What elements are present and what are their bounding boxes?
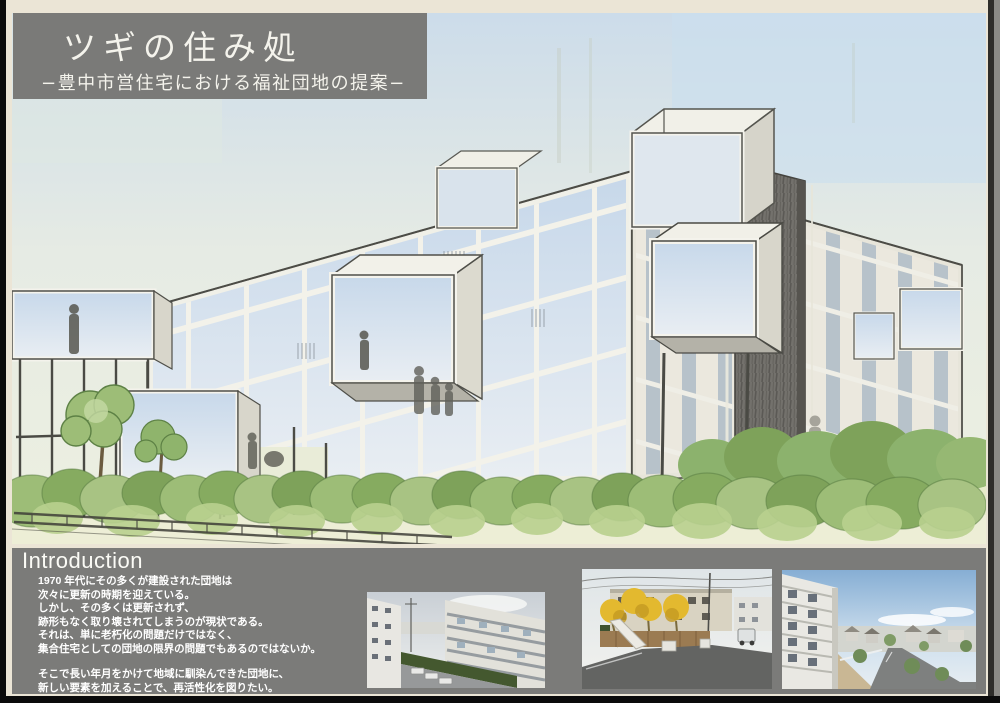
frame-edge-right-outer	[994, 0, 1000, 703]
presentation-board: ツギの住み処 −豊中市営住宅における福祉団地の提案− Introduction …	[0, 0, 1000, 703]
frame-edge-bottom	[0, 696, 1000, 703]
frame-edge-left	[0, 0, 6, 703]
intro-line: 新しい要素を加えることで、再活性化を図りたい。	[38, 682, 321, 696]
intro-heading: Introduction	[22, 548, 143, 574]
intro-line: 1970 年代にその多くが建設された団地は	[38, 575, 321, 589]
intro-line: 集合住宅としての団地の限界の問題でもあるのではないか。	[38, 643, 321, 657]
photo-danchi-neighborhood-view	[782, 570, 976, 689]
photo-danchi-courtyard	[367, 592, 545, 688]
intro-line: それは、単に老朽化の問題だけではなく、	[38, 629, 321, 643]
intro-paragraphs: 1970 年代にその多くが建設された団地は 次々に更新の時期を迎えている。 しか…	[38, 575, 321, 695]
title-block: ツギの住み処 −豊中市営住宅における福祉団地の提案−	[13, 13, 427, 99]
intro-line: 次々に更新の時期を迎えている。	[38, 589, 321, 603]
photo-danchi-street-ginkgo	[582, 569, 772, 689]
intro-line: そこで長い年月をかけて地域に馴染んできた団地に、	[38, 668, 321, 682]
paragraph-gap	[38, 656, 321, 668]
intro-line: 跡形もなく取り壊されてしまうのが現状である。	[38, 616, 321, 630]
poster-title: ツギの住み処	[63, 21, 303, 69]
intro-line: しかし、その多くは更新されず、	[38, 602, 321, 616]
poster-subtitle: −豊中市営住宅における福祉団地の提案−	[41, 69, 406, 95]
